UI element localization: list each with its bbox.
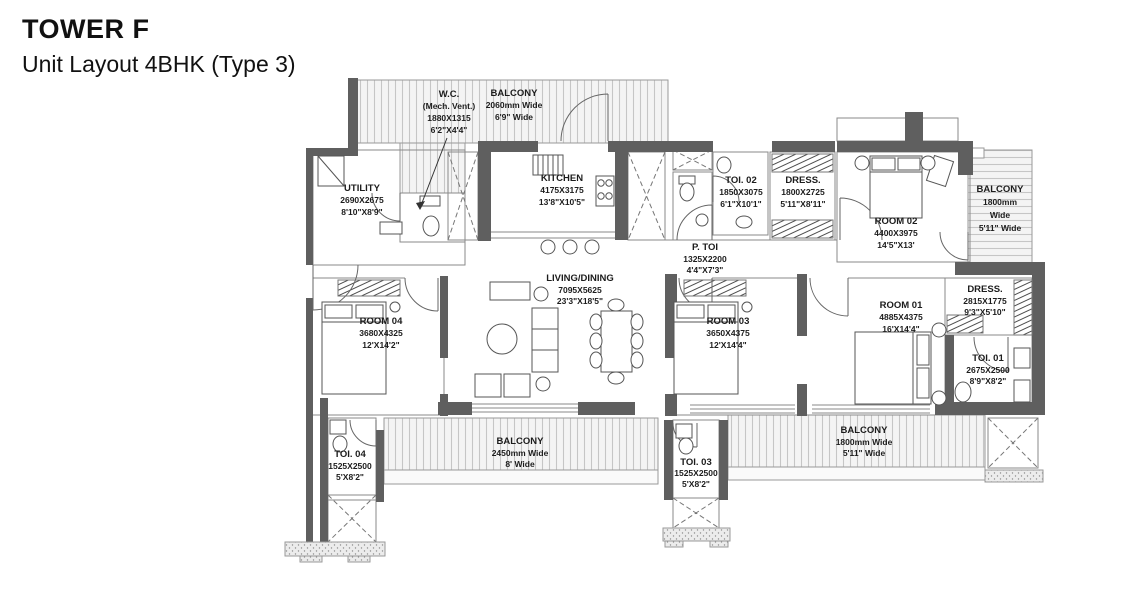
label-dress01-dim-ft: 9'3"X5'10" (964, 307, 1005, 317)
dining-chair (631, 352, 643, 368)
label-toi01-dim-mm: 2675X2500 (966, 365, 1010, 375)
dining-chair (631, 333, 643, 349)
label-living-dim-mm: 7095X5625 (558, 285, 602, 295)
label-balcony-top: BALCONY (491, 88, 539, 99)
label-ptoi-dim-mm: 1325X2200 (683, 254, 727, 264)
label-room04-dim-mm: 3680X4325 (359, 328, 403, 338)
label-room03: ROOM 03 (707, 316, 750, 327)
balcony-bottom-right-band (728, 467, 985, 480)
wardrobe-dress02-bottom (772, 220, 833, 238)
label-dress02: DRESS. (785, 175, 820, 186)
toilet-ptoi (680, 183, 694, 201)
toilet-toi03 (679, 438, 693, 454)
label-wc: W.C. (439, 89, 460, 100)
label-kitchen: KITCHEN (541, 173, 583, 184)
toilet-wc (423, 216, 439, 236)
label-toi03-dim-mm: 1525X2500 (674, 468, 718, 478)
label-room01-dim-ft: 16'X14'4" (882, 324, 919, 334)
label-balcony-br-ft: 5'11" Wide (843, 448, 886, 458)
basin-ptoi (696, 214, 708, 226)
stove-burner (606, 193, 612, 199)
footing-mid (663, 528, 730, 541)
label-balcony-bl: BALCONY (497, 436, 545, 447)
label-living: LIVING/DINING (546, 273, 614, 284)
label-balcony-br: BALCONY (841, 425, 889, 436)
dining-chair (590, 352, 602, 368)
label-toi03-dim-ft: 5'X8'2" (682, 479, 710, 489)
label-wc-sub: (Mech. Vent.) (423, 101, 476, 111)
bedside-table (932, 323, 946, 337)
label-living-dim-ft: 23'3"X18'5" (557, 296, 603, 306)
label-toi02-dim-ft: 6'1"X10'1" (720, 199, 761, 209)
stove-burner (598, 193, 604, 199)
bedside-table (742, 302, 752, 312)
toilet-toi01 (955, 382, 971, 402)
label-balcony-top-ft: 6'9" Wide (495, 112, 533, 122)
stove-burner (606, 180, 612, 186)
side-table (536, 377, 550, 391)
label-toi01-dim-ft: 8'9"X8'2" (970, 376, 1007, 386)
label-dress01: DRESS. (967, 284, 1002, 295)
floorplan-drawing: W.C. (Mech. Vent.) 1880X1315 6'2"X4'4" B… (0, 0, 1146, 604)
label-balcony-right-wide: Wide (990, 210, 1011, 220)
label-utility: UTILITY (344, 183, 381, 194)
label-toi04: TOI. 04 (334, 449, 366, 460)
label-balcony-right: BALCONY (977, 184, 1025, 195)
label-room02: ROOM 02 (875, 216, 918, 227)
label-balcony-right-ft: 5'11" Wide (979, 223, 1022, 233)
wardrobe-dress01 (947, 315, 983, 333)
stove-burner (598, 180, 604, 186)
label-room03-dim-mm: 3650X4375 (706, 328, 750, 338)
balcony-bottom-left-band (384, 470, 658, 484)
dining-chair (631, 314, 643, 330)
label-toi02: TOI. 02 (725, 175, 757, 186)
label-room01-dim-mm: 4885X4375 (879, 312, 923, 322)
coffee-table (487, 324, 517, 354)
dining-chair (608, 372, 624, 384)
kitchen-stool (563, 240, 577, 254)
footing-left (285, 542, 385, 556)
basin-toi02 (736, 216, 752, 228)
label-room02-dim-ft: 14'5"X13' (877, 240, 914, 250)
bedside-table (390, 302, 400, 312)
label-balcony-top-mm: 2060mm Wide (486, 100, 543, 110)
label-balcony-bl-mm: 2450mm Wide (492, 448, 549, 458)
label-room01: ROOM 01 (880, 300, 923, 311)
bedside-table (855, 156, 869, 170)
label-balcony-right-mm: 1800mm (983, 197, 1017, 207)
floorplan-page: TOWER F Unit Layout 4BHK (Type 3) (0, 0, 1146, 604)
bedside-table (932, 391, 946, 405)
label-utility-dim-mm: 2690X2675 (340, 195, 384, 205)
label-toi04-dim-mm: 1525X2500 (328, 461, 372, 471)
label-room04: ROOM 04 (360, 316, 403, 327)
label-toi03: TOI. 03 (680, 457, 712, 468)
label-toi01: TOI. 01 (972, 353, 1004, 364)
bedside-table (921, 156, 935, 170)
label-dress02-dim-mm: 1800X2725 (781, 187, 825, 197)
label-toi04-dim-ft: 5'X8'2" (336, 472, 364, 482)
dining-chair (608, 299, 624, 311)
dining-chair (590, 314, 602, 330)
label-utility-dim-ft: 8'10"X8'9" (341, 207, 382, 217)
label-ptoi: P. TOI (692, 242, 718, 253)
balcony-right-area (968, 150, 1032, 265)
label-balcony-br-mm: 1800mm Wide (836, 437, 893, 447)
footing-right (985, 470, 1043, 482)
label-dress01-dim-mm: 2815X1775 (963, 296, 1007, 306)
label-toi02-dim-mm: 1850X3075 (719, 187, 763, 197)
footing-mid-tooth1 (665, 541, 683, 547)
wardrobe-room03 (684, 280, 746, 296)
footing-left-tooth2 (348, 556, 370, 562)
wardrobe-dress02-top (772, 154, 833, 172)
label-dress02-dim-ft: 5'11"X8'11" (780, 199, 825, 209)
label-balcony-bl-ft: 8' Wide (505, 459, 535, 469)
label-wc-dim-mm: 1880X1315 (427, 113, 471, 123)
kitchen-stool (541, 240, 555, 254)
wardrobe-dress01-side (1014, 280, 1032, 335)
label-room03-dim-ft: 12'X14'4" (709, 340, 746, 350)
label-wc-dim-ft: 6'2"X4'4" (431, 125, 468, 135)
label-kitchen-dim-ft: 13'8"X10'5" (539, 197, 585, 207)
side-table (534, 287, 548, 301)
toilet-toi02 (717, 157, 731, 173)
label-ptoi-dim-ft: 4'4"X7'3" (687, 265, 724, 275)
footing-left-tooth1 (300, 556, 322, 562)
kitchen-stool (585, 240, 599, 254)
footing-mid-tooth2 (710, 541, 728, 547)
label-room02-dim-mm: 4400X3975 (874, 228, 918, 238)
dining-chair (590, 333, 602, 349)
label-kitchen-dim-mm: 4175X3175 (540, 185, 584, 195)
label-room04-dim-ft: 12'X14'2" (362, 340, 399, 350)
